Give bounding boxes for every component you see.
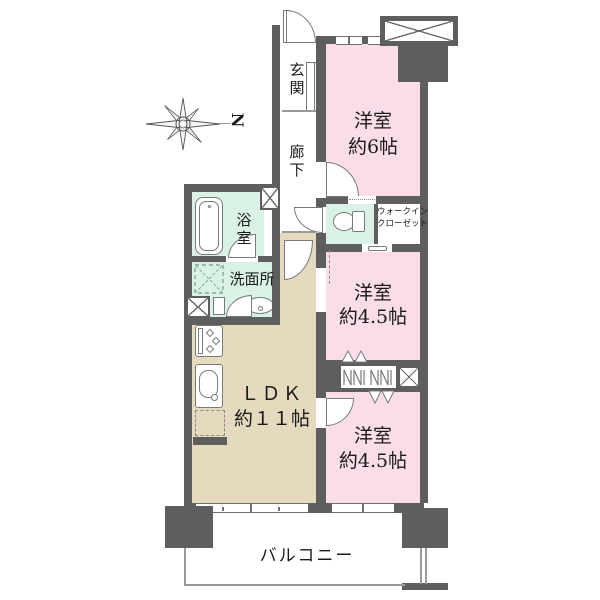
balcony-corner-wall — [402, 583, 448, 590]
wall — [316, 360, 341, 392]
bathroom-label: 浴室 — [235, 202, 252, 258]
folding-door-icon — [341, 350, 369, 363]
genkan-label: 玄関 — [288, 52, 305, 108]
balcony-railing — [184, 548, 186, 586]
hanger-icon — [369, 367, 395, 387]
shoe-cabinet-divider — [314, 63, 315, 111]
floor-plan: N 玄関 廊下 洋室 約6帖 ウォークイン クローゼット 浴室 洗面所 洋室 約… — [0, 0, 600, 600]
bathtub-drain-icon — [208, 205, 211, 208]
hall-threshold-line — [282, 231, 316, 233]
sliding-door-track — [329, 250, 330, 284]
door-opening — [316, 162, 326, 198]
folding-door-icon — [368, 390, 396, 405]
wall — [258, 256, 272, 262]
washbasin-faucet-icon — [258, 306, 263, 311]
pillar — [398, 44, 448, 82]
bedroom6-size: 約6帖 — [331, 136, 415, 158]
wic-label-line1: ウォークイン — [377, 207, 421, 218]
wall — [308, 503, 332, 513]
pipe-space-x-box — [186, 296, 210, 318]
toilet-door-arc — [294, 207, 323, 233]
bedroom45b-size: 約4.5帖 — [328, 450, 418, 472]
wall — [316, 312, 326, 360]
wall — [316, 36, 326, 162]
bedroom6-label: 洋室 — [336, 110, 410, 132]
compass-north-label: N — [227, 111, 247, 129]
wall — [326, 196, 428, 204]
pipe-space-x-box — [260, 186, 280, 210]
genkan-step-line — [282, 110, 316, 112]
window — [336, 36, 362, 45]
washroom-door-leaf — [213, 297, 225, 315]
door-opening — [316, 398, 326, 428]
stove-grill-icon — [198, 328, 203, 354]
ldk-label: ＬＤＫ — [232, 383, 312, 405]
bedroom45a-label: 洋室 — [336, 282, 410, 304]
bedroom45a-size: 約4.5帖 — [328, 306, 418, 328]
compass-icon — [145, 98, 221, 150]
wall — [192, 256, 226, 262]
closet-x-box — [398, 366, 420, 388]
corridor-label: 廊下 — [288, 134, 305, 190]
entrance-door-arc — [286, 10, 316, 43]
washing-machine-icon — [194, 264, 224, 294]
pillar — [402, 508, 448, 548]
hanger-icon — [342, 367, 368, 387]
wall — [316, 428, 326, 503]
bedroom45b-label: 洋室 — [336, 425, 410, 447]
balcony-railing — [425, 548, 427, 584]
wall — [184, 317, 280, 325]
wall — [184, 184, 192, 503]
wall — [184, 184, 272, 192]
balcony-window-bedroom45b — [332, 503, 394, 513]
balcony-railing — [420, 548, 422, 584]
wall — [420, 44, 428, 503]
sliding-door-opening — [316, 268, 326, 312]
refrigerator-space — [195, 410, 225, 436]
wall — [316, 198, 326, 207]
sink-faucet-icon — [211, 394, 218, 401]
toilet-tank-icon — [352, 211, 365, 232]
wall — [193, 437, 227, 445]
washroom-label: 洗面所 — [226, 271, 278, 288]
pillar — [165, 506, 213, 548]
shaft-x-box — [380, 16, 458, 46]
wic-sliding-door — [362, 244, 392, 252]
wic-label-line2: クローゼット — [377, 219, 421, 230]
balcony-railing — [184, 584, 405, 586]
sliding-opening — [348, 196, 376, 204]
bathtub-inner — [199, 201, 219, 251]
ldk-size: 約１１帖 — [227, 408, 317, 430]
balcony-label: バルコニー — [252, 541, 362, 566]
